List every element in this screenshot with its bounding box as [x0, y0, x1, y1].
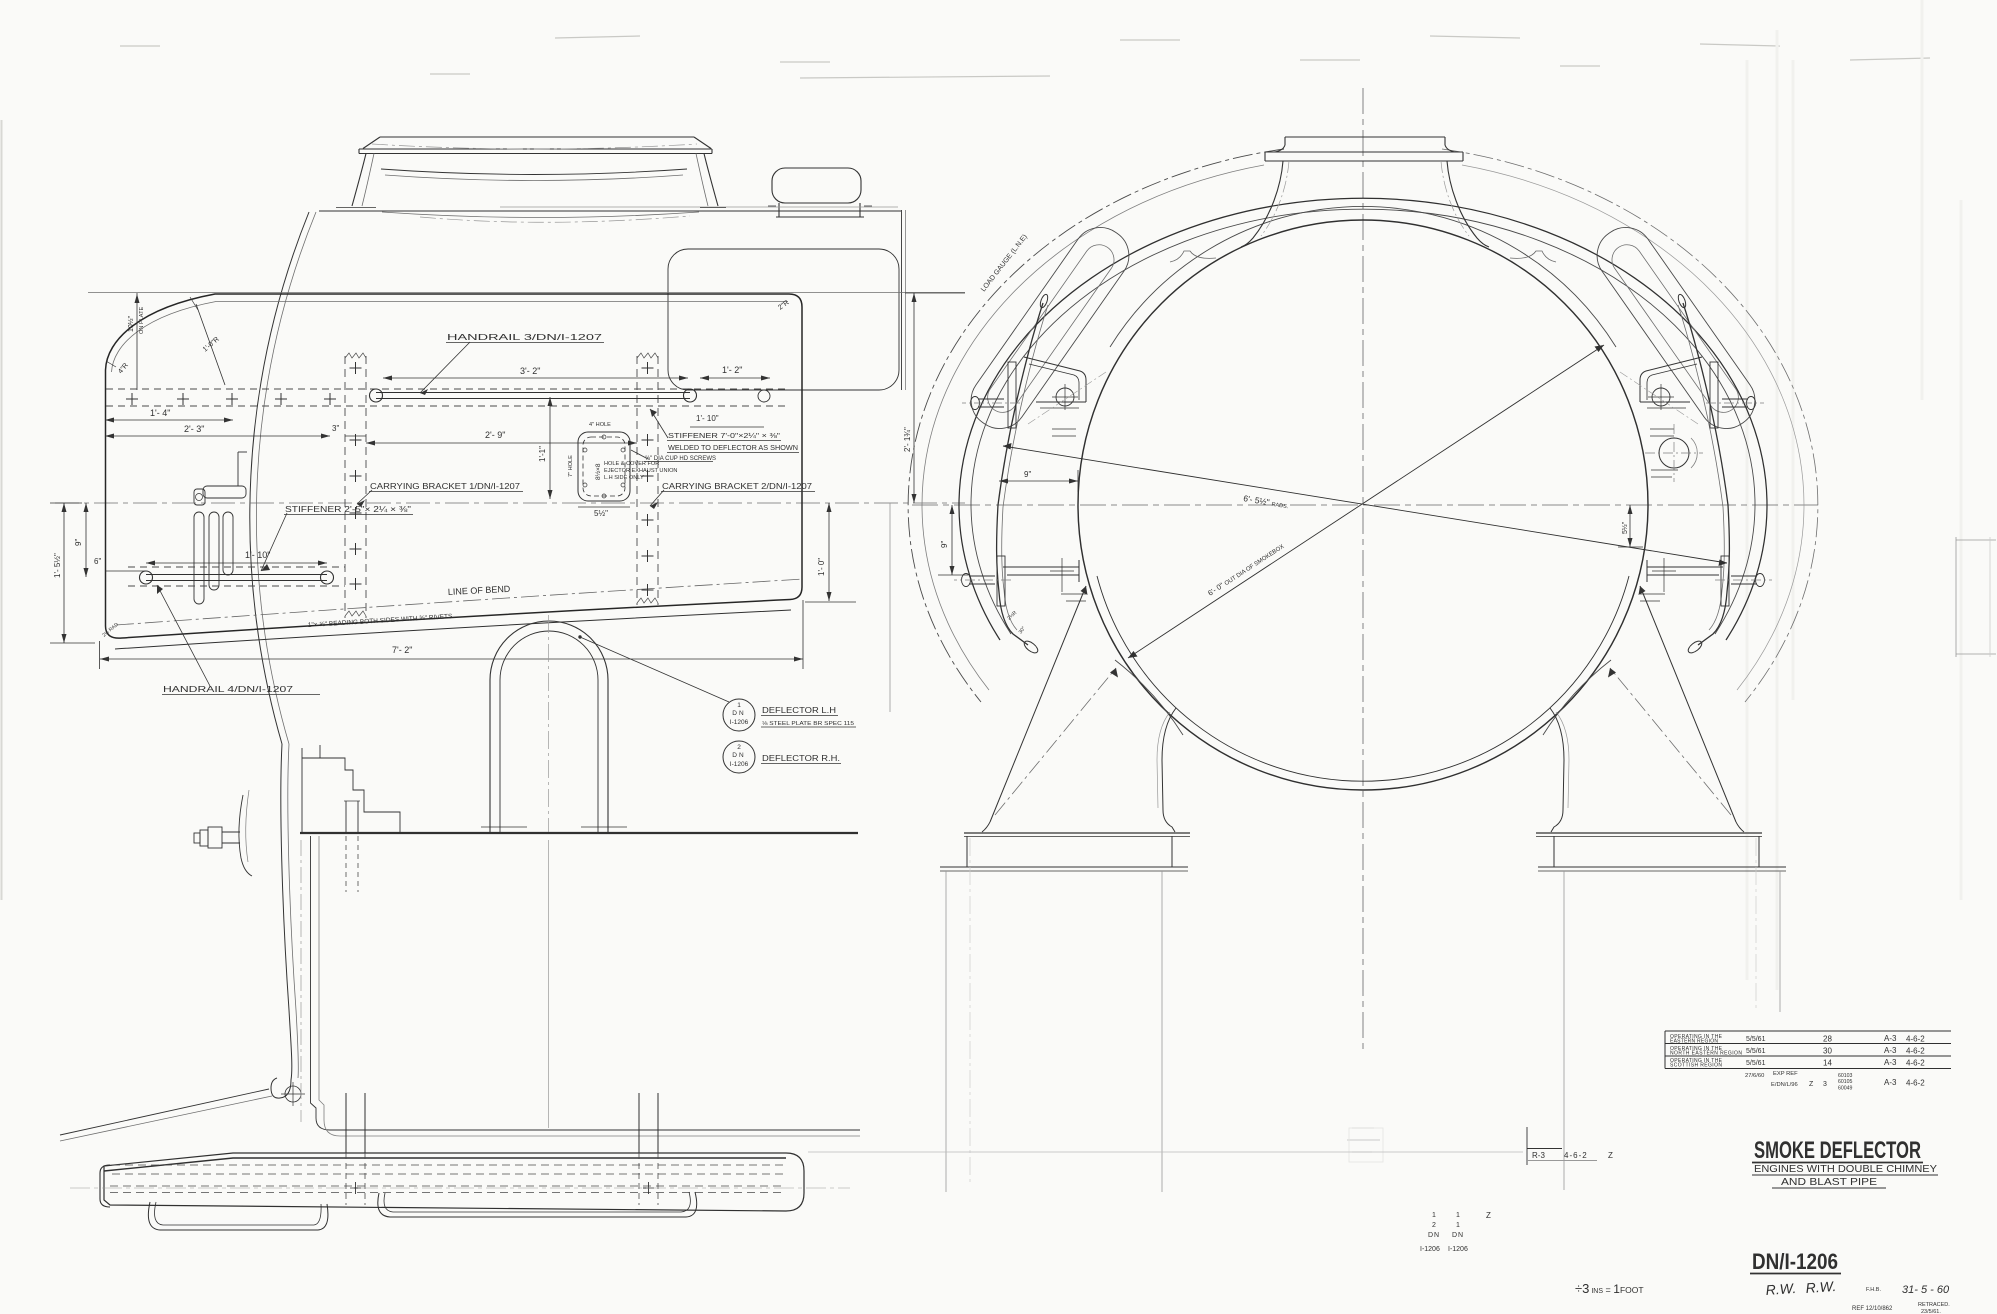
- svg-text:I-1206: I-1206: [1420, 1246, 1440, 1253]
- svg-text:5/5/61: 5/5/61: [1746, 1048, 1766, 1055]
- svg-text:3: 3: [1823, 1081, 1827, 1088]
- svg-text:1: 1: [1432, 1212, 1436, 1219]
- svg-text:ON PLATE: ON PLATE: [139, 306, 145, 334]
- svg-text:4-6-2: 4-6-2: [1906, 1047, 1925, 1056]
- svg-text:STIFFENER 7'-0"×2¼" × ⅜": STIFFENER 7'-0"×2¼" × ⅜": [668, 433, 781, 440]
- svg-text:CARRYING BRACKET 2/DN/I-1207: CARRYING BRACKET 2/DN/I-1207: [662, 482, 813, 491]
- svg-text:2'- 3": 2'- 3": [184, 424, 204, 434]
- svg-text:SMOKE DEFLECTOR: SMOKE DEFLECTOR: [1754, 1137, 1921, 1164]
- svg-text:4-6-2: 4-6-2: [1906, 1035, 1925, 1044]
- svg-text:EASTERN REGION: EASTERN REGION: [1670, 1039, 1718, 1045]
- svg-text:E/DN/L/96: E/DN/L/96: [1771, 1082, 1798, 1088]
- svg-text:F.H.B.: F.H.B.: [1866, 1287, 1881, 1293]
- svg-text:8½×8: 8½×8: [594, 463, 602, 480]
- svg-text:REF 12/10/862: REF 12/10/862: [1852, 1306, 1893, 1312]
- svg-text:4" HOLE: 4" HOLE: [589, 422, 611, 428]
- svg-text:DN: DN: [732, 752, 745, 759]
- svg-text:I-1206: I-1206: [730, 719, 749, 726]
- svg-text:A-3: A-3: [1884, 1058, 1897, 1067]
- svg-text:Z: Z: [1608, 1151, 1613, 1160]
- svg-text:3": 3": [332, 424, 339, 433]
- svg-text:5/5/61: 5/5/61: [1746, 1036, 1766, 1043]
- svg-text:DN: DN: [1428, 1232, 1440, 1239]
- svg-text:30: 30: [1823, 1047, 1832, 1056]
- svg-text:WELDED TO DEFLECTOR AS SHOWN: WELDED TO DEFLECTOR AS SHOWN: [668, 445, 798, 452]
- svg-text:4-6-2: 4-6-2: [1906, 1079, 1925, 1088]
- svg-text:L.H SIDE ONLY: L.H SIDE ONLY: [604, 475, 644, 481]
- svg-text:DN: DN: [732, 710, 745, 717]
- svg-text:1: 1: [1456, 1222, 1460, 1229]
- svg-text:1'- 10": 1'- 10": [696, 414, 719, 423]
- svg-text:R-3: R-3: [1532, 1151, 1545, 1160]
- svg-text:2: 2: [737, 744, 741, 751]
- svg-text:R.W.: R.W.: [1765, 1280, 1797, 1298]
- svg-text:2'- 1¾": 2'- 1¾": [903, 427, 912, 452]
- svg-text:R.W.: R.W.: [1805, 1278, 1837, 1296]
- svg-text:1'- 4": 1'- 4": [150, 408, 170, 418]
- svg-text:10½": 10½": [127, 315, 135, 332]
- svg-text:A-3: A-3: [1884, 1078, 1897, 1087]
- svg-text:60105: 60105: [1838, 1079, 1853, 1085]
- svg-text:9": 9": [1024, 470, 1031, 479]
- svg-text:DEFLECTOR R.H.: DEFLECTOR R.H.: [762, 754, 840, 763]
- svg-text:DEFLECTOR L.H: DEFLECTOR L.H: [762, 706, 836, 715]
- svg-text:2'- 9": 2'- 9": [485, 430, 505, 440]
- svg-text:DN/I-1206: DN/I-1206: [1752, 1249, 1838, 1274]
- svg-text:CARRYING BRACKET 1/DN/I-1207: CARRYING BRACKET 1/DN/I-1207: [370, 482, 521, 491]
- svg-text:5½": 5½": [594, 509, 608, 518]
- svg-text:9": 9": [940, 541, 949, 548]
- svg-text:Z: Z: [1486, 1211, 1491, 1220]
- svg-text:2: 2: [1432, 1222, 1436, 1229]
- svg-text:3'- 2": 3'- 2": [520, 366, 540, 376]
- svg-text:I-1206: I-1206: [730, 761, 749, 768]
- svg-text:5/5/61: 5/5/61: [1746, 1060, 1766, 1067]
- svg-text:AND BLAST PIPE: AND BLAST PIPE: [1781, 1177, 1877, 1188]
- svg-text:7'- 2": 7'- 2": [392, 645, 412, 655]
- svg-text:DN: DN: [1452, 1232, 1464, 1239]
- svg-text:60049: 60049: [1838, 1086, 1853, 1092]
- svg-text:HANDRAIL 3/DN/I-1207: HANDRAIL 3/DN/I-1207: [447, 333, 603, 342]
- svg-text:ENGINES WITH DOUBLE CHIMNEY: ENGINES WITH DOUBLE CHIMNEY: [1754, 1164, 1937, 1175]
- svg-text:Z: Z: [1809, 1081, 1814, 1088]
- svg-text:1'- 2": 1'- 2": [722, 365, 742, 375]
- svg-text:RETRACED.: RETRACED.: [1918, 1302, 1950, 1308]
- svg-text:14: 14: [1823, 1059, 1832, 1068]
- svg-text:I-1206: I-1206: [1448, 1246, 1468, 1253]
- svg-text:23/5/61.: 23/5/61.: [1921, 1309, 1941, 1314]
- svg-text:HANDRAIL 4/DN/I-1207: HANDRAIL 4/DN/I-1207: [163, 685, 294, 694]
- svg-text:6": 6": [94, 557, 101, 566]
- svg-text:⅛ STEEL PLATE BR SPEC 115: ⅛ STEEL PLATE BR SPEC 115: [762, 721, 854, 727]
- svg-text:1: 1: [1456, 1212, 1460, 1219]
- svg-text:4-6-2: 4-6-2: [1906, 1059, 1925, 1068]
- svg-text:HOLE & COVER FOR: HOLE & COVER FOR: [604, 461, 659, 467]
- svg-text:1'- 10": 1'- 10": [245, 550, 270, 560]
- svg-text:27/6/60: 27/6/60: [1745, 1073, 1764, 1079]
- svg-text:A-3: A-3: [1884, 1034, 1897, 1043]
- svg-text:1'- 5½": 1'- 5½": [53, 553, 62, 578]
- svg-text:SCOTTISH REGION: SCOTTISH REGION: [1670, 1063, 1722, 1069]
- svg-text:4-6-2: 4-6-2: [1564, 1151, 1588, 1160]
- svg-text:31- 5 - 60: 31- 5 - 60: [1902, 1284, 1950, 1296]
- svg-text:1: 1: [737, 702, 741, 709]
- svg-text:28: 28: [1823, 1035, 1832, 1044]
- svg-text:5½": 5½": [1621, 521, 1629, 534]
- svg-text:1'-1": 1'-1": [538, 446, 547, 462]
- svg-text:7" HOLE: 7" HOLE: [568, 455, 574, 477]
- svg-text:A-3: A-3: [1884, 1046, 1897, 1055]
- svg-text:EXP REF: EXP REF: [1773, 1071, 1798, 1077]
- svg-text:NORTH EASTERN REGION: NORTH EASTERN REGION: [1670, 1051, 1742, 1057]
- svg-text:STIFFENER 2'-5"× 2¼ × ⅜": STIFFENER 2'-5"× 2¼ × ⅜": [285, 505, 411, 514]
- svg-text:EJECTOR EXHAUST UNION: EJECTOR EXHAUST UNION: [604, 468, 677, 474]
- svg-text:1'- 0": 1'- 0": [817, 558, 826, 576]
- svg-text:9": 9": [74, 539, 83, 546]
